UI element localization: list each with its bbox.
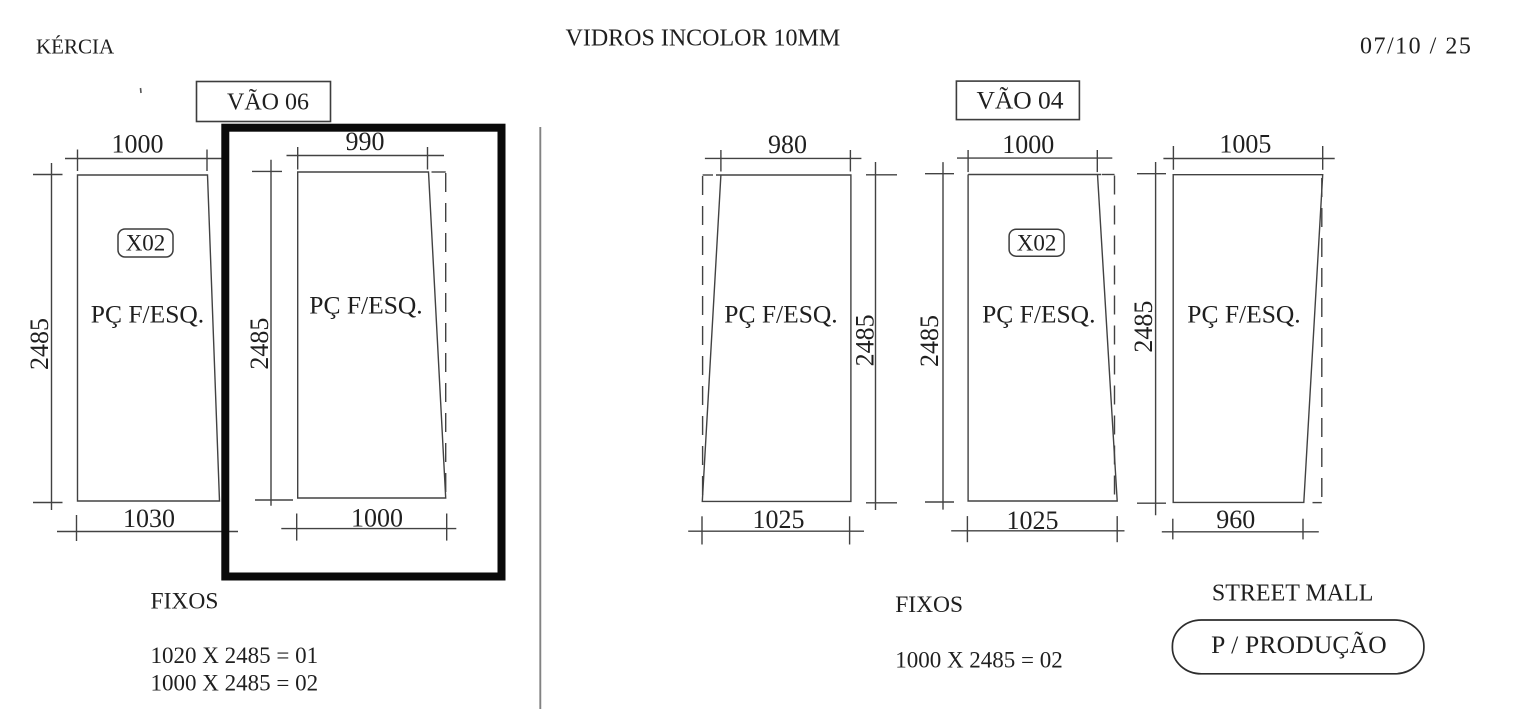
svg-text:VÃO 06: VÃO 06	[227, 90, 309, 116]
svg-text:PÇ F/ESQ.: PÇ F/ESQ.	[309, 291, 422, 320]
svg-text:2485: 2485	[850, 314, 879, 366]
svg-text:PÇ F/ESQ.: PÇ F/ESQ.	[91, 300, 204, 329]
svg-text:PÇ F/ESQ.: PÇ F/ESQ.	[1187, 299, 1300, 328]
svg-text:STREET MALL: STREET MALL	[1212, 581, 1374, 607]
svg-text:960: 960	[1216, 505, 1255, 534]
svg-text:1025: 1025	[1007, 506, 1059, 535]
svg-text:PÇ F/ESQ.: PÇ F/ESQ.	[724, 299, 837, 328]
svg-text:P / PRODUÇÃO: P / PRODUÇÃO	[1211, 630, 1387, 659]
svg-text:1025: 1025	[753, 505, 805, 534]
svg-text:FIXOS: FIXOS	[151, 589, 219, 615]
svg-text:KÉRCIA: KÉRCIA	[36, 35, 115, 59]
svg-text:X02: X02	[1017, 230, 1057, 255]
svg-text:VÃO 04: VÃO 04	[976, 86, 1063, 115]
svg-text:1030: 1030	[123, 504, 175, 533]
svg-text:VIDROS INCOLOR 10MM: VIDROS INCOLOR 10MM	[566, 26, 841, 52]
svg-text:07/10 / 25: 07/10 / 25	[1360, 34, 1472, 60]
svg-text:1000 X 2485 = 02: 1000 X 2485 = 02	[895, 648, 1063, 673]
svg-text:1000: 1000	[1002, 130, 1054, 159]
svg-text:2485: 2485	[1129, 301, 1158, 353]
svg-text:1000: 1000	[351, 504, 403, 533]
svg-text:990: 990	[346, 127, 385, 156]
svg-text:1020 X 2485 = 01: 1020 X 2485 = 01	[151, 643, 319, 668]
svg-text:2485: 2485	[915, 315, 944, 367]
svg-text:PÇ F/ESQ.: PÇ F/ESQ.	[982, 299, 1095, 328]
svg-text:1005: 1005	[1219, 130, 1271, 159]
svg-text:1000 X 2485 = 02: 1000 X 2485 = 02	[151, 670, 319, 695]
svg-text:X02: X02	[126, 231, 166, 256]
svg-text:980: 980	[768, 130, 807, 159]
svg-text:2485: 2485	[25, 318, 54, 370]
svg-text:FIXOS: FIXOS	[895, 592, 963, 618]
svg-text:1000: 1000	[112, 129, 164, 158]
svg-text:2485: 2485	[245, 318, 274, 370]
